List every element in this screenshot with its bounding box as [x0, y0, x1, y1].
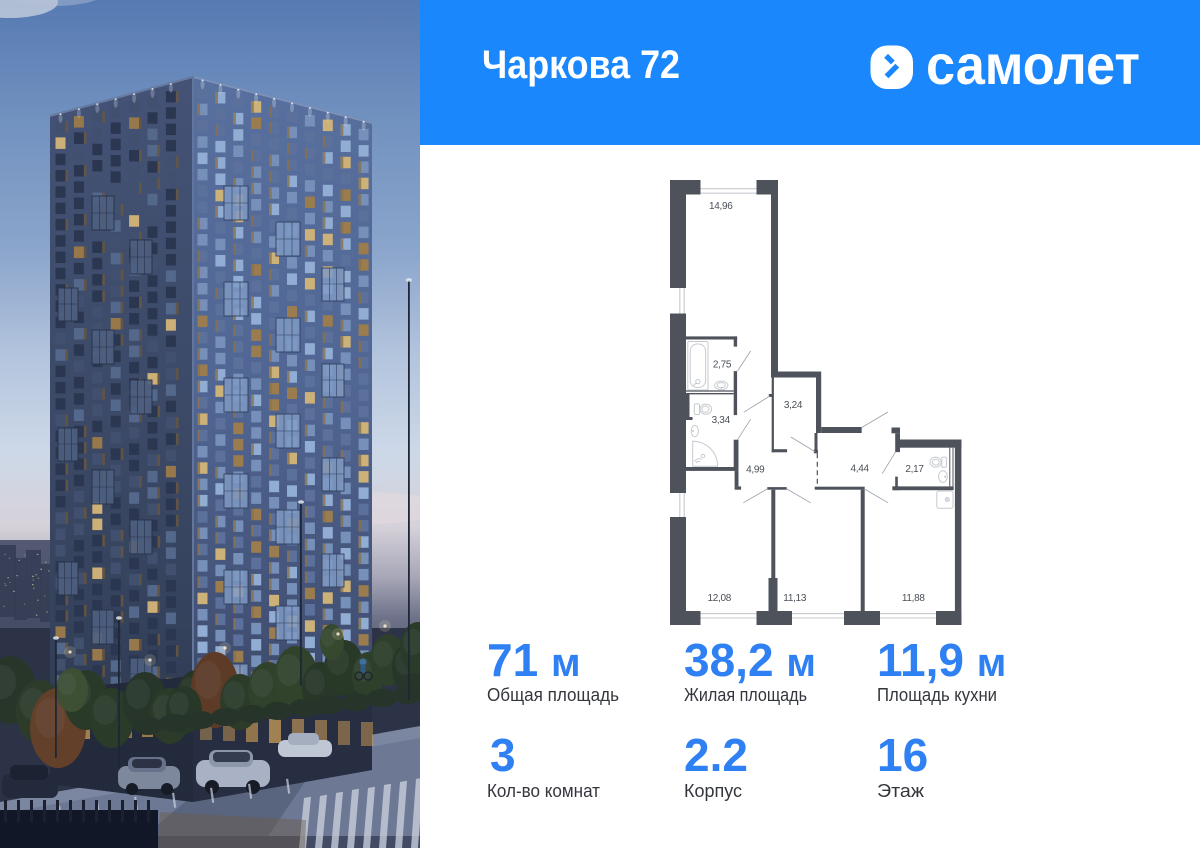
svg-text:4,99: 4,99 [746, 464, 765, 475]
svg-text:2,75: 2,75 [713, 359, 732, 370]
svg-text:3,34: 3,34 [712, 415, 731, 426]
svg-text:Чаркова 72: Чаркова 72 [482, 44, 680, 87]
svg-text:самолет: самолет [926, 45, 1140, 90]
svg-text:2,17: 2,17 [905, 464, 924, 475]
svg-text:4,44: 4,44 [850, 464, 869, 475]
svg-text:Корпус: Корпус [684, 781, 742, 801]
svg-text:Площадь кухни: Площадь кухни [877, 685, 997, 705]
svg-text:12,08: 12,08 [708, 593, 732, 604]
svg-text:Жилая площадь: Жилая площадь [684, 685, 807, 705]
svg-text:11,88: 11,88 [902, 593, 926, 604]
svg-text:3,24: 3,24 [784, 400, 803, 411]
svg-text:14,96: 14,96 [709, 201, 733, 212]
svg-text:Кол-во комнат: Кол-во комнат [487, 781, 600, 801]
svg-text:11,13: 11,13 [783, 593, 807, 604]
svg-text:Общая площадь: Общая площадь [487, 685, 619, 705]
svg-text:Этаж: Этаж [877, 781, 924, 801]
